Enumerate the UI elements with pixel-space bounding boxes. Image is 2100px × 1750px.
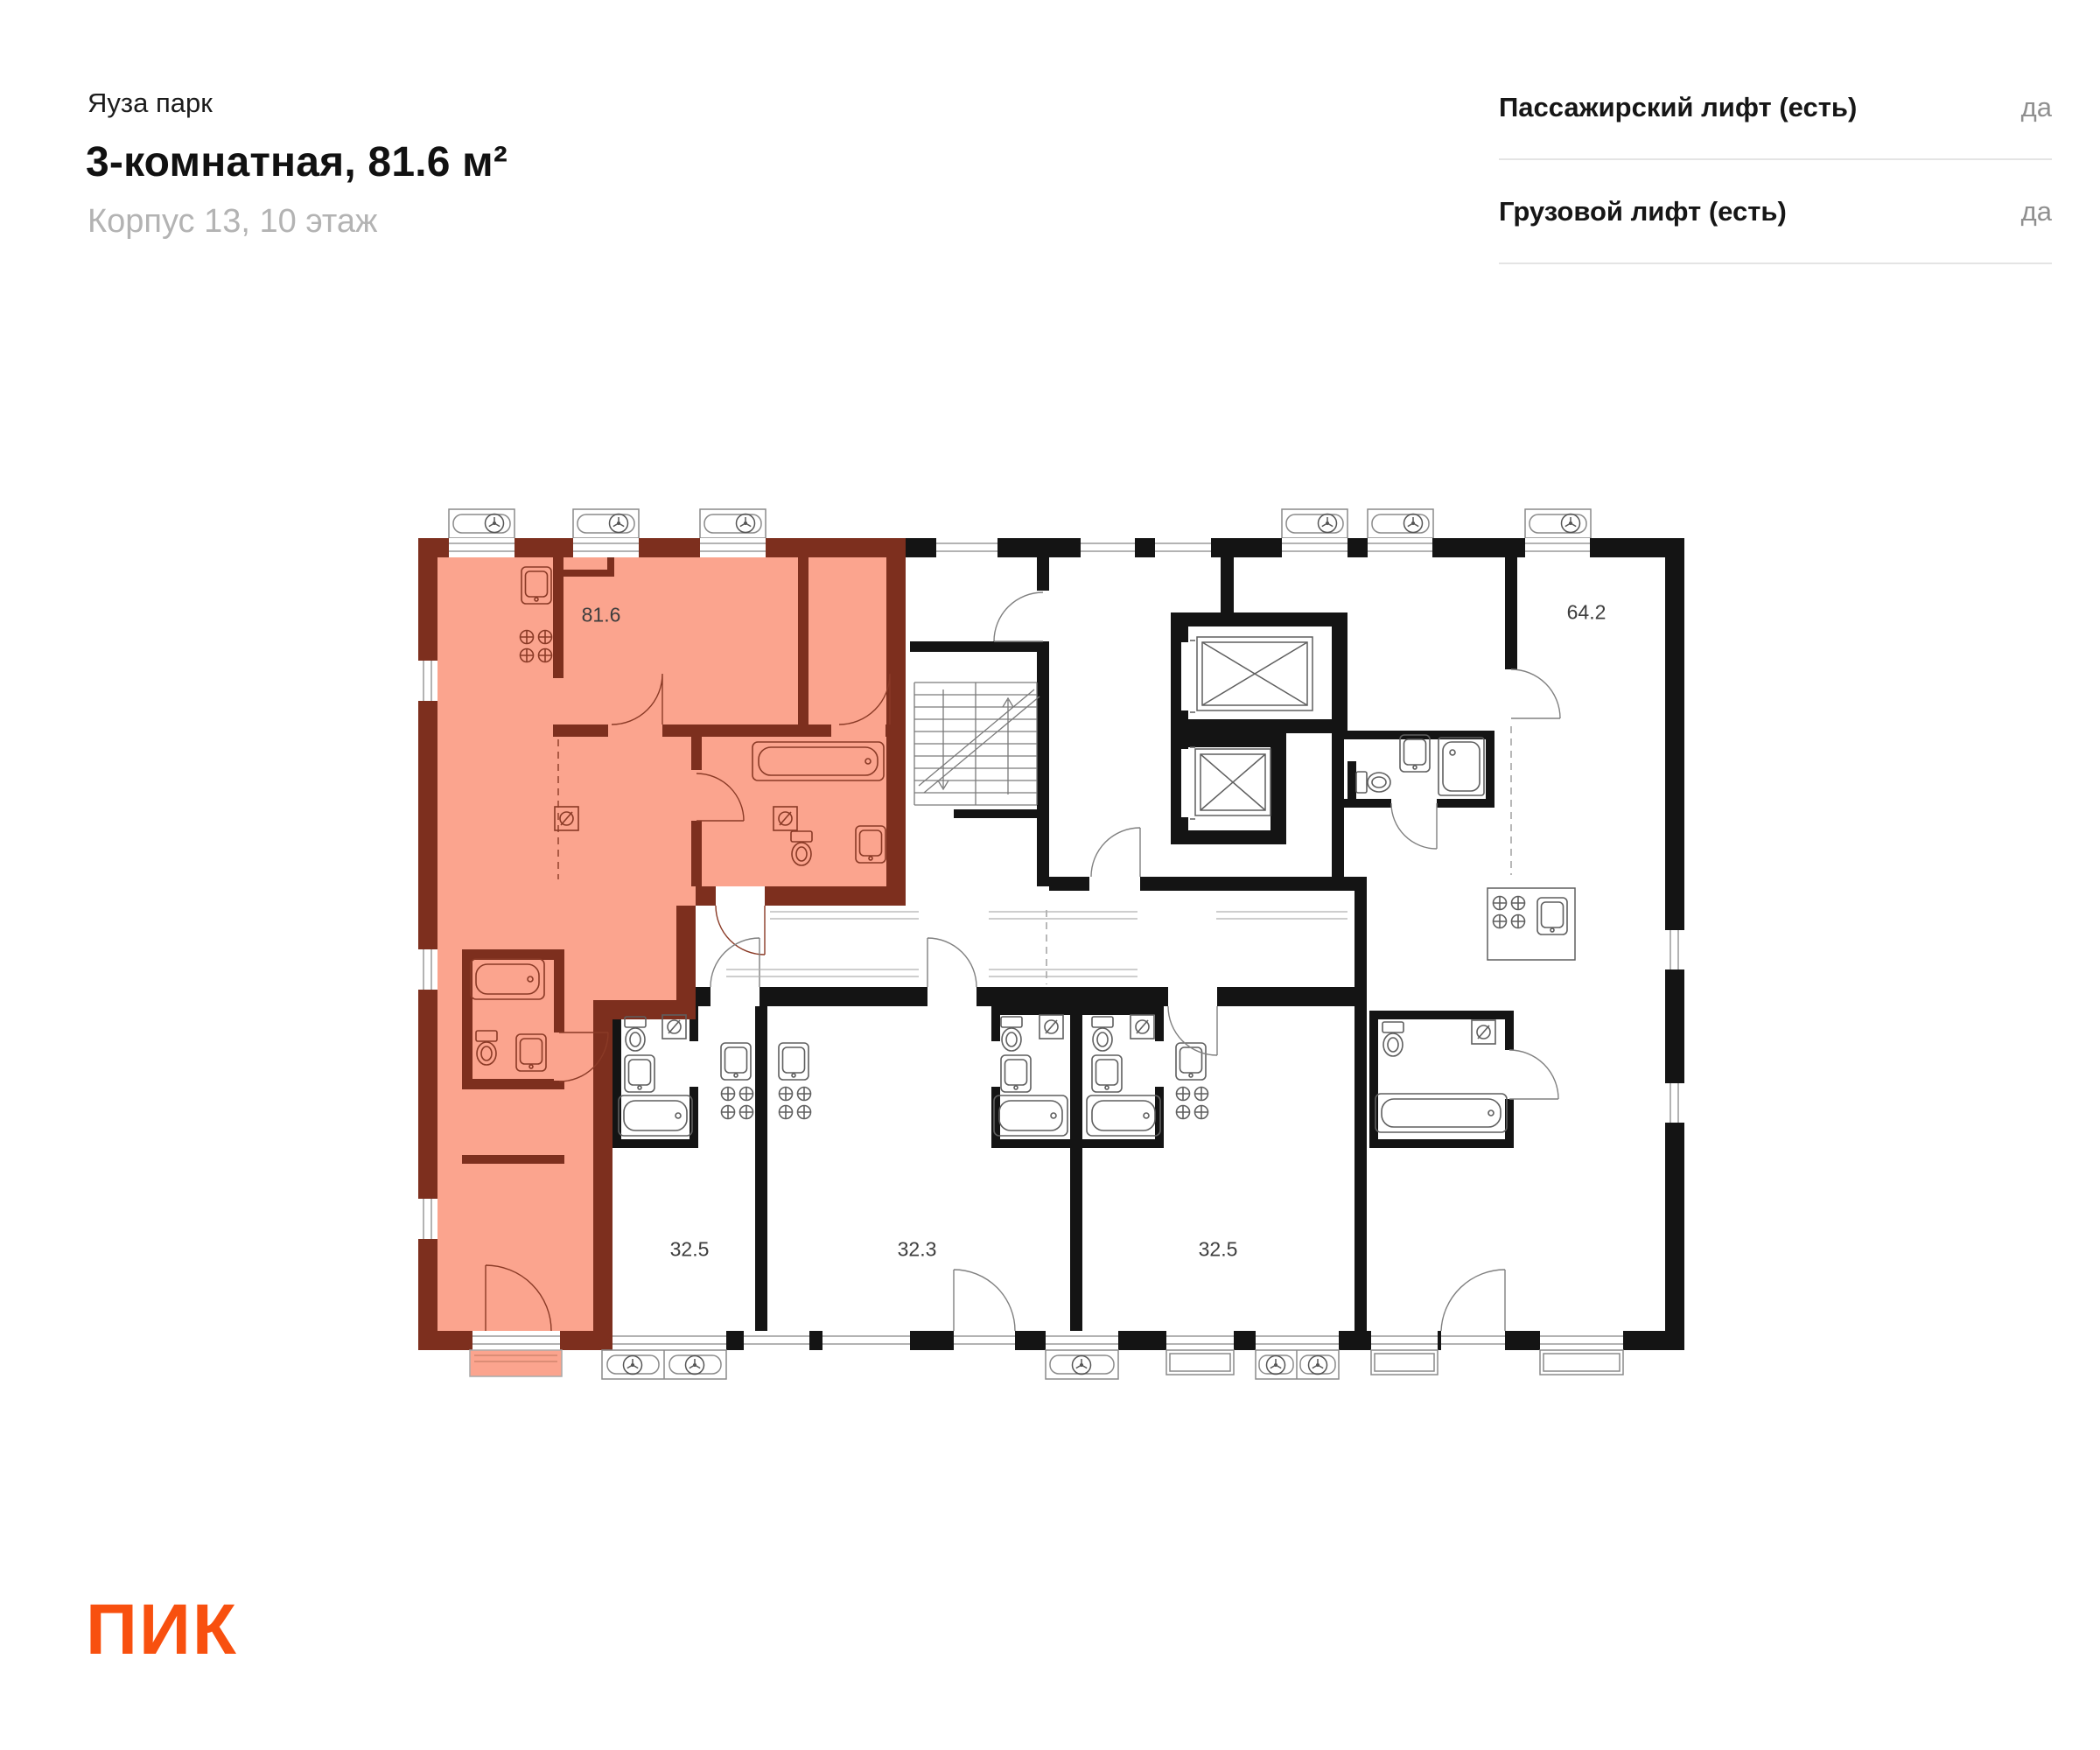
top-vent-boxes <box>449 509 1591 538</box>
bottom-vent-boxes <box>602 1350 1623 1379</box>
area-label-highlighted: 81.6 <box>582 604 621 627</box>
pik-logo: ПИК <box>86 1594 238 1666</box>
page: Яуза парк 3-комнатная, 81.6 м² Корпус 13… <box>0 0 2100 1750</box>
area-label-unit: 32.5 <box>1199 1238 1238 1262</box>
floor-plan <box>0 0 2100 1750</box>
area-label-unit: 64.2 <box>1567 601 1606 625</box>
area-label-unit: 32.5 <box>670 1238 710 1262</box>
area-label-unit: 32.3 <box>898 1238 937 1262</box>
balcony <box>470 1350 562 1376</box>
